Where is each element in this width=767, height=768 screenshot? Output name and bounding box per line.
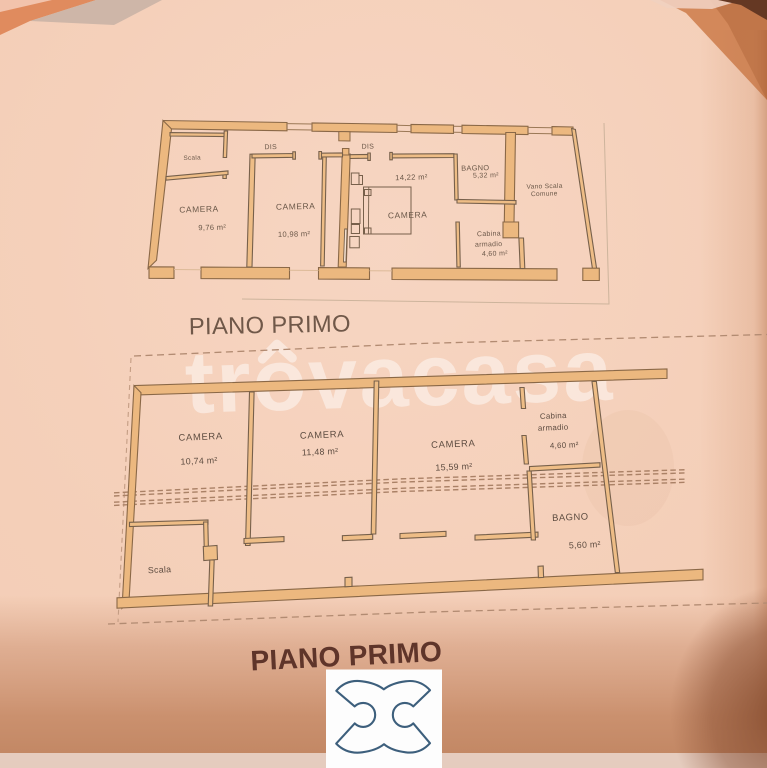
svg-text:CAMERA: CAMERA (431, 437, 476, 450)
svg-text:armadio: armadio (475, 241, 503, 249)
svg-text:Cabina: Cabina (477, 231, 501, 239)
svg-text:Scala: Scala (148, 564, 172, 575)
svg-text:14,22 m²: 14,22 m² (395, 172, 428, 182)
svg-text:armadio: armadio (538, 423, 569, 433)
svg-text:CAMERA: CAMERA (178, 430, 223, 443)
svg-text:DIS: DIS (362, 143, 375, 150)
svg-text:9,76 m²: 9,76 m² (198, 223, 226, 233)
svg-text:Cabina: Cabina (540, 411, 567, 421)
svg-text:CAMERA: CAMERA (300, 428, 345, 441)
svg-text:10,74 m²: 10,74 m² (180, 455, 218, 467)
svg-text:5,32 m²: 5,32 m² (473, 172, 499, 180)
svg-text:5,60 m²: 5,60 m² (569, 539, 601, 550)
svg-text:BAGNO: BAGNO (461, 163, 489, 173)
svg-text:15,59 m²: 15,59 m² (435, 461, 473, 473)
svg-text:Comune: Comune (531, 190, 558, 198)
svg-text:DIS: DIS (264, 144, 277, 151)
svg-text:10,98 m²: 10,98 m² (278, 229, 311, 239)
svg-text:CAMERA: CAMERA (179, 204, 219, 215)
svg-text:11,48 m²: 11,48 m² (302, 446, 339, 458)
svg-text:Scala: Scala (183, 155, 201, 162)
svg-text:4,60 m²: 4,60 m² (550, 440, 579, 450)
svg-text:4,60 m²: 4,60 m² (482, 250, 508, 258)
svg-text:BAGNO: BAGNO (552, 510, 589, 523)
svg-text:CAMERA: CAMERA (388, 209, 428, 220)
svg-text:CAMERA: CAMERA (276, 201, 316, 212)
